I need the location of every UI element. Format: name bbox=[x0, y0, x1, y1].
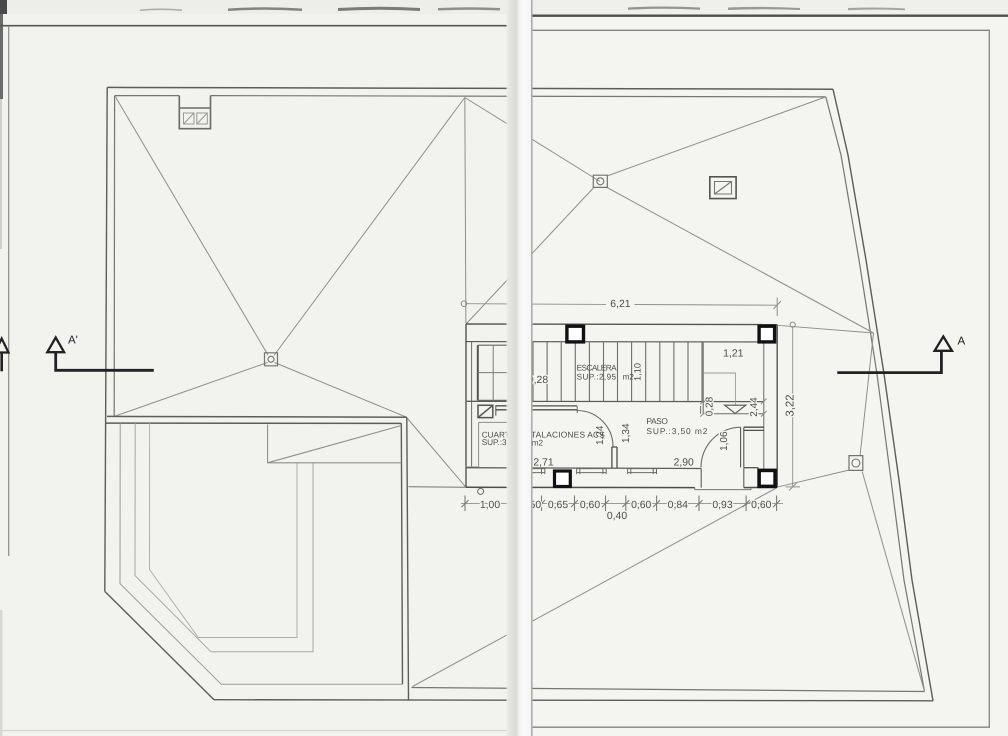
svg-text:0,84: 0,84 bbox=[668, 500, 688, 511]
svg-text:SUP.:3: SUP.:3 bbox=[482, 438, 507, 447]
svg-text:PASO: PASO bbox=[646, 416, 668, 426]
svg-text:1,10: 1,10 bbox=[632, 363, 642, 381]
svg-text:1,00: 1,00 bbox=[480, 500, 500, 511]
svg-text:0,93: 0,93 bbox=[712, 500, 732, 511]
svg-text:1,34: 1,34 bbox=[621, 423, 632, 443]
svg-text:2,90: 2,90 bbox=[674, 458, 694, 469]
svg-text:SUP.:3,50 m2: SUP.:3,50 m2 bbox=[646, 426, 707, 436]
svg-text:0,40: 0,40 bbox=[607, 511, 627, 522]
svg-text:2,44: 2,44 bbox=[749, 397, 760, 417]
svg-text:1,21: 1,21 bbox=[723, 349, 743, 360]
svg-text:SUP.:2,95: SUP.:2,95 bbox=[577, 373, 617, 382]
svg-text:ESCALERA: ESCALERA bbox=[577, 363, 618, 372]
svg-text:A: A bbox=[958, 336, 966, 348]
svg-text:m2: m2 bbox=[532, 438, 544, 447]
svg-text:0,28: 0,28 bbox=[705, 396, 716, 416]
svg-text:2,71: 2,71 bbox=[533, 457, 553, 468]
svg-text:0,65: 0,65 bbox=[548, 500, 568, 511]
svg-text:3,22: 3,22 bbox=[784, 394, 796, 416]
svg-text:0,60: 0,60 bbox=[580, 500, 600, 511]
svg-text:A': A' bbox=[68, 335, 78, 347]
svg-text:0,60: 0,60 bbox=[631, 500, 651, 511]
svg-text:0,60: 0,60 bbox=[751, 500, 771, 511]
svg-text:6,21: 6,21 bbox=[610, 299, 630, 310]
svg-text:1,06: 1,06 bbox=[719, 431, 730, 451]
